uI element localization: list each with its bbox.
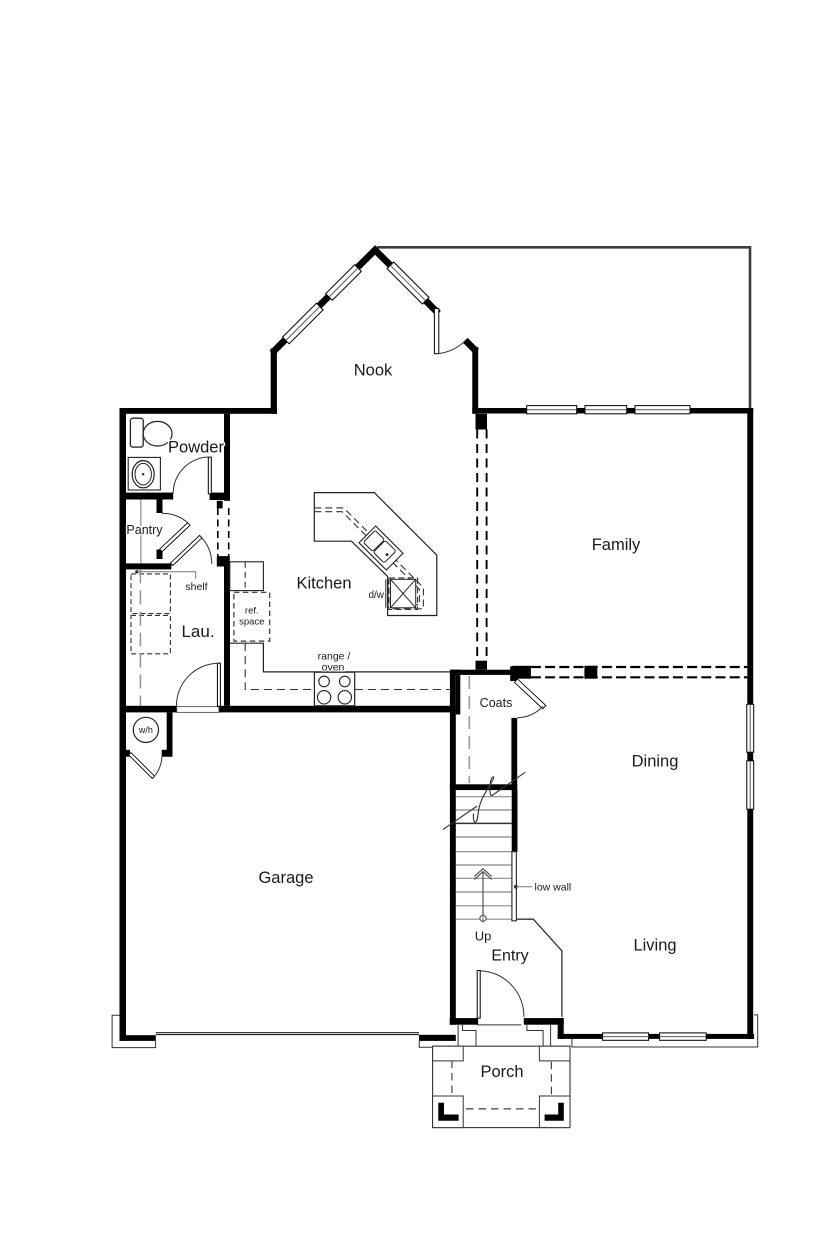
svg-text:Pantry: Pantry [126,523,163,537]
svg-text:Kitchen: Kitchen [296,575,351,593]
svg-text:Dining: Dining [632,753,679,771]
svg-text:Porch: Porch [480,1063,523,1081]
svg-text:low wall: low wall [535,882,572,894]
svg-text:Family: Family [592,536,641,554]
svg-text:Living: Living [633,937,676,955]
svg-text:d/w: d/w [368,590,384,601]
svg-text:Lau.: Lau. [181,622,214,641]
svg-text:shelf: shelf [185,581,207,593]
svg-text:ref.: ref. [245,606,259,617]
svg-text:Entry: Entry [491,948,528,965]
svg-text:Powder: Powder [168,439,224,457]
svg-text:Nook: Nook [354,362,393,380]
svg-text:w/h: w/h [138,725,153,735]
svg-text:Garage: Garage [258,869,313,887]
svg-text:Up: Up [475,929,492,944]
svg-text:Coats: Coats [480,696,513,710]
svg-text:space: space [239,617,264,628]
